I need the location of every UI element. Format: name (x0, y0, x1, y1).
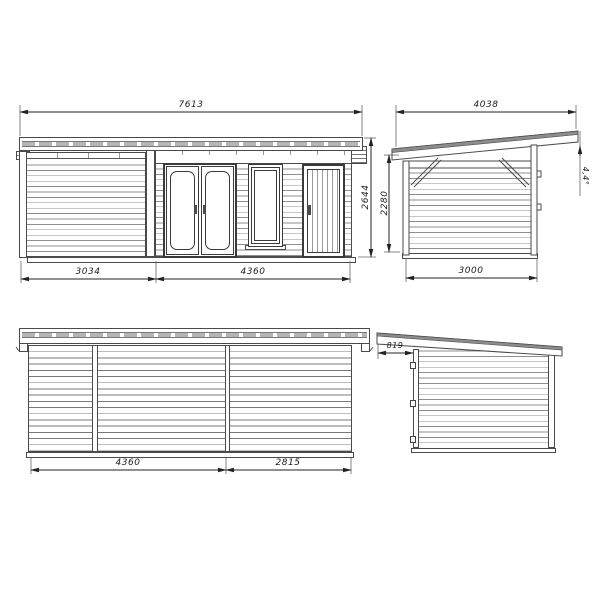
side-right-frame (403, 145, 541, 255)
dim-label-front-roof-width: 7613 (161, 100, 221, 110)
side-right-dimension-lines (396, 105, 580, 282)
technical-drawing-canvas: 7613 3034 4360 2644 4038 2280 3000 4,4° … (0, 0, 600, 600)
side-right-roof (392, 131, 578, 160)
front-dimension-lines (20, 105, 400, 283)
dimension-and-structure-overlay (0, 0, 600, 600)
dim-label-front-porch-width: 3034 (58, 267, 118, 277)
front-dimension-arrows (20, 112, 389, 279)
rear-gutter-hooks (16, 347, 373, 351)
dim-label-side-roof-length: 4038 (456, 100, 516, 110)
dim-label-front-height: 2644 (361, 167, 371, 227)
dim-label-side-wall-height: 2280 (380, 173, 390, 233)
dim-label-roof-angle: 4,4° (580, 146, 590, 206)
dim-label-rear-left-width: 4360 (98, 458, 158, 468)
dim-label-rear-right-width: 2815 (258, 458, 318, 468)
dim-label-roof-overhang: 819 (365, 341, 425, 351)
dim-label-side-wall-length: 3000 (441, 266, 501, 276)
dim-label-front-cabin-width: 4360 (223, 267, 283, 277)
